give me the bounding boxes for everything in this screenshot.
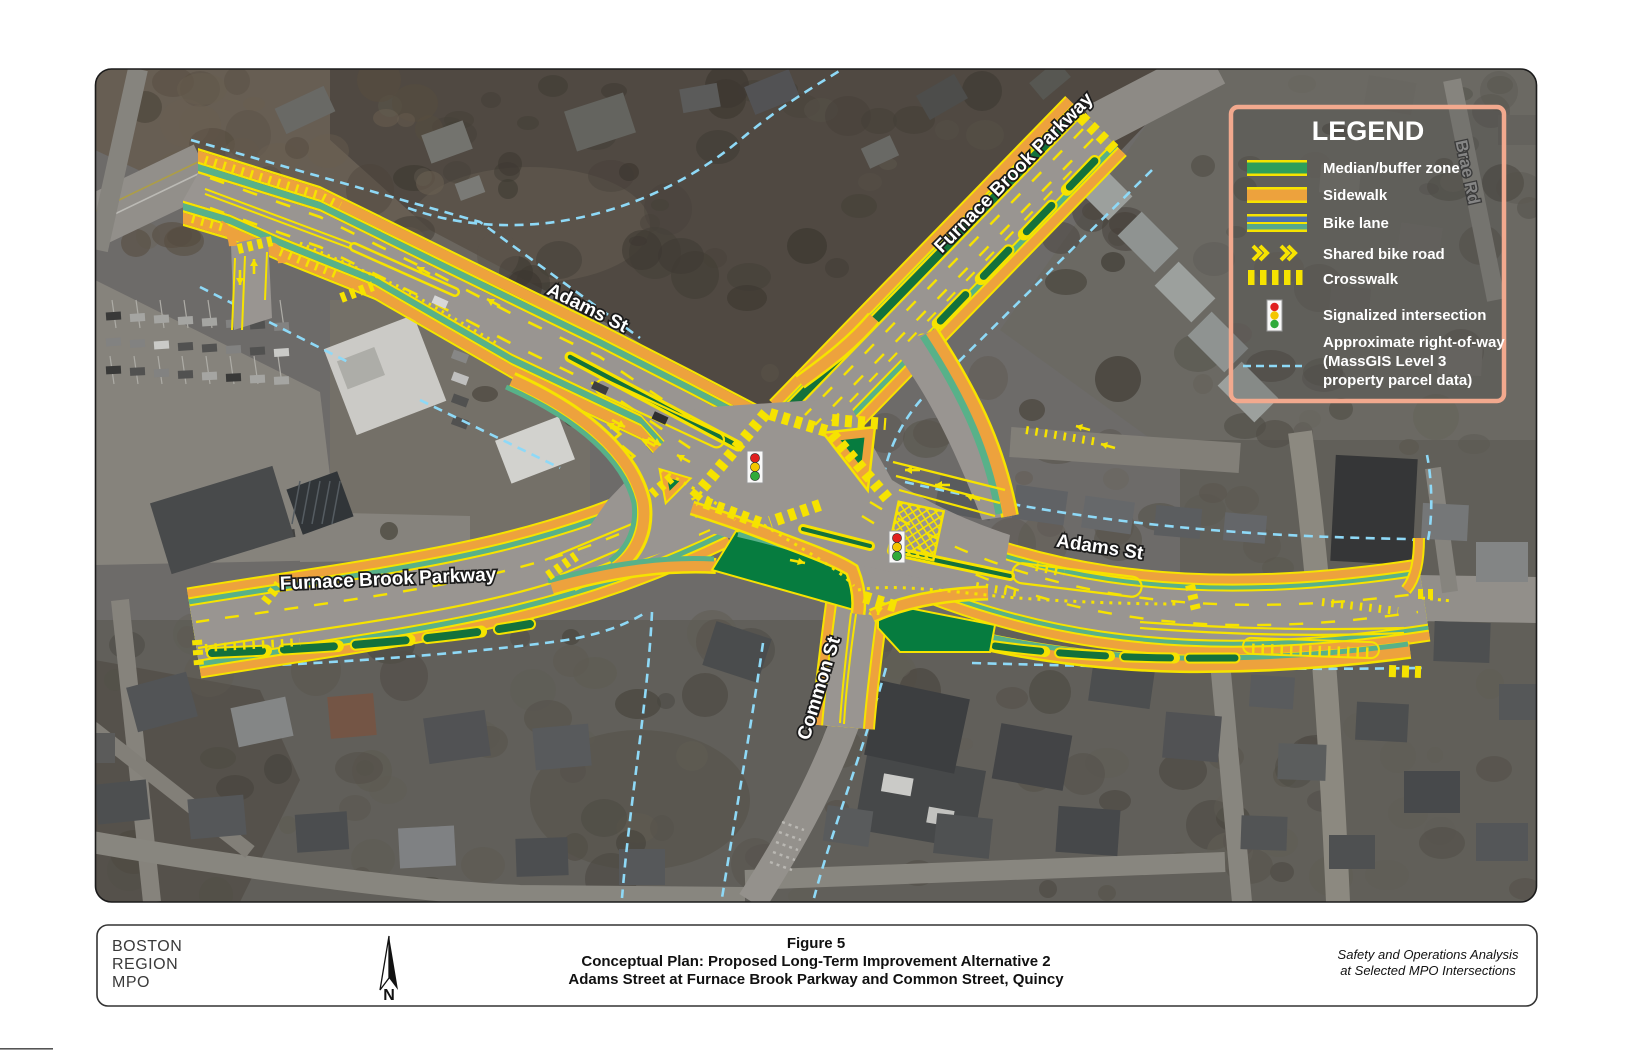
svg-text:N: N [383,987,395,1004]
svg-text:Median/buffer zone: Median/buffer zone [1323,160,1460,177]
svg-text:property parcel data): property parcel data) [1323,372,1472,389]
svg-text:Figure 5: Figure 5 [787,935,845,952]
svg-text:MPO: MPO [112,974,150,991]
svg-text:at Selected MPO Intersections: at Selected MPO Intersections [1340,963,1516,978]
svg-text:Adams Street at Furnace Brook: Adams Street at Furnace Brook Parkway an… [568,971,1064,988]
svg-text:Conceptual Plan: Proposed Long: Conceptual Plan: Proposed Long-Term Impr… [581,953,1050,970]
svg-text:Sidewalk: Sidewalk [1323,187,1388,204]
svg-text:REGION: REGION [112,956,178,973]
svg-text:Approximate right-of-way: Approximate right-of-way [1323,334,1505,351]
svg-text:(MassGIS Level 3: (MassGIS Level 3 [1323,353,1446,370]
svg-text:LEGEND: LEGEND [1312,116,1425,146]
svg-text:Signalized intersection: Signalized intersection [1323,307,1486,324]
svg-text:BOSTON: BOSTON [112,938,182,955]
svg-text:Safety and Operations Analysis: Safety and Operations Analysis [1338,947,1519,962]
svg-text:Shared bike road: Shared bike road [1323,246,1445,263]
svg-text:Crosswalk: Crosswalk [1323,271,1399,288]
svg-text:Bike lane: Bike lane [1323,215,1389,232]
